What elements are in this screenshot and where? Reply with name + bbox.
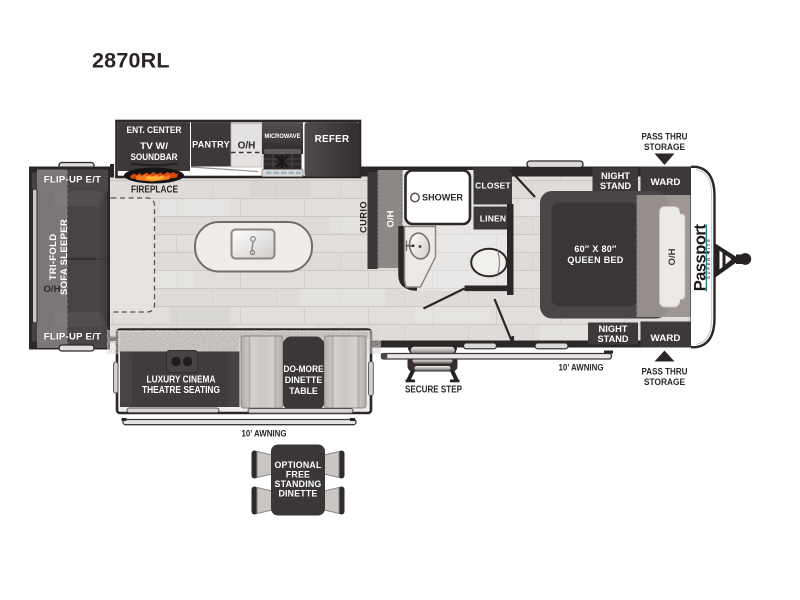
svg-text:PASS THRU: PASS THRU (642, 132, 688, 142)
svg-text:STAND: STAND (598, 334, 629, 344)
svg-text:TABLE: TABLE (289, 386, 318, 397)
svg-text:REFER: REFER (315, 134, 350, 145)
svg-text:2870RL: 2870RL (92, 49, 170, 73)
svg-text:TRI-FOLD: TRI-FOLD (48, 234, 59, 281)
svg-text:NIGHT: NIGHT (601, 171, 631, 181)
svg-text:O/H: O/H (386, 210, 397, 227)
svg-text:10’ AWNING: 10’ AWNING (559, 363, 604, 373)
svg-text:FREE: FREE (286, 470, 310, 480)
svg-text:SECURE STEP: SECURE STEP (405, 385, 462, 396)
svg-text:DINETTE: DINETTE (285, 375, 323, 386)
svg-text:PASS THRU: PASS THRU (642, 367, 688, 377)
svg-text:SOUNDBAR: SOUNDBAR (131, 152, 178, 162)
svg-text:SOFA SLEEPER: SOFA SLEEPER (59, 219, 70, 295)
svg-text:FIREPLACE: FIREPLACE (131, 185, 178, 196)
svg-text:WARD: WARD (651, 176, 681, 187)
svg-text:MICROWAVE: MICROWAVE (265, 133, 301, 140)
svg-text:LINEN: LINEN (480, 214, 507, 224)
svg-text:CLOSET: CLOSET (475, 181, 511, 191)
svg-text:WARD: WARD (651, 332, 681, 343)
svg-text:O/H: O/H (667, 248, 678, 265)
svg-text:QUEEN BED: QUEEN BED (567, 255, 623, 265)
svg-text:ENT. CENTER: ENT. CENTER (127, 125, 182, 135)
svg-text:DO-MORE: DO-MORE (284, 364, 324, 375)
svg-text:SUPER LITE: SUPER LITE (707, 237, 711, 278)
svg-text:STAND: STAND (600, 181, 631, 191)
svg-text:O/H: O/H (44, 284, 61, 295)
svg-text:SHOWER: SHOWER (422, 193, 464, 203)
svg-text:STANDING: STANDING (275, 479, 322, 489)
svg-text:DINETTE: DINETTE (278, 489, 317, 499)
svg-text:PANTRY: PANTRY (192, 140, 230, 150)
svg-text:FLIP-UP E/T: FLIP-UP E/T (44, 175, 102, 186)
svg-text:LUXURY CINEMA: LUXURY CINEMA (147, 375, 216, 386)
svg-text:TV W/: TV W/ (140, 141, 169, 151)
svg-text:FLIP-UP E/T: FLIP-UP E/T (44, 332, 102, 343)
svg-text:STORAGE: STORAGE (644, 377, 685, 387)
svg-text:NIGHT: NIGHT (599, 324, 629, 334)
svg-text:OPTIONAL: OPTIONAL (274, 460, 321, 470)
svg-text:10’ AWNING: 10’ AWNING (242, 429, 287, 439)
svg-text:STORAGE: STORAGE (644, 142, 685, 152)
svg-text:60″ X 80″: 60″ X 80″ (574, 244, 617, 254)
svg-text:O/H: O/H (238, 141, 256, 152)
svg-text:THEATRE SEATING: THEATRE SEATING (142, 385, 220, 396)
svg-text:CURIO: CURIO (359, 201, 369, 233)
